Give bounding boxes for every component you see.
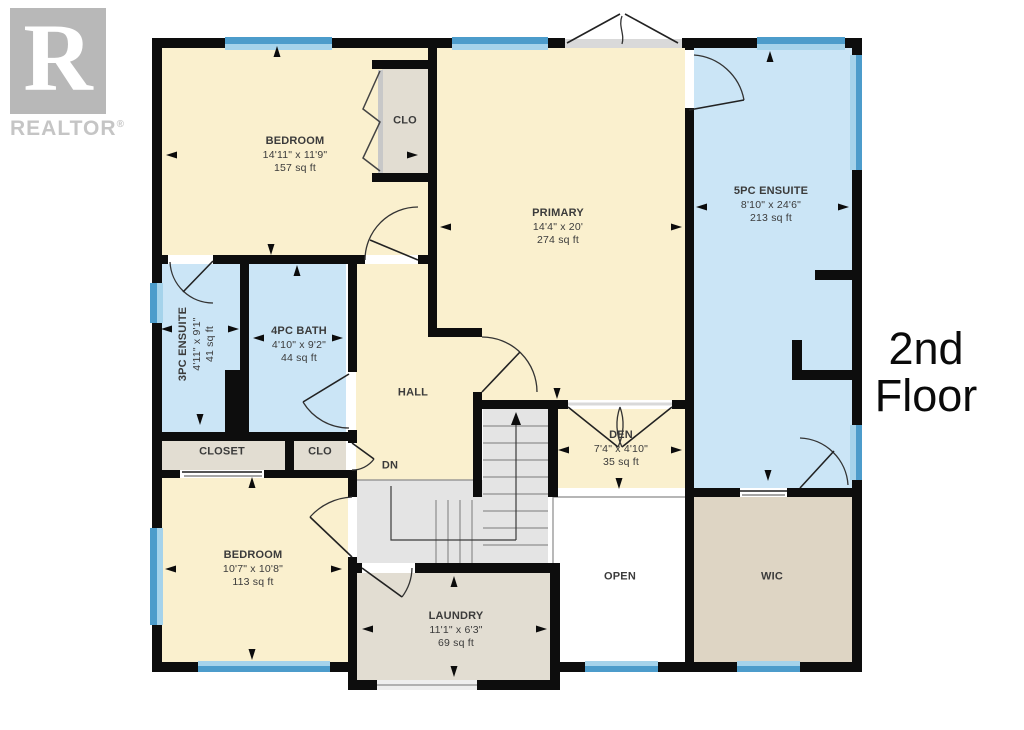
label-den: DEN 7'4" x 4'10" 35 sq ft bbox=[594, 429, 648, 470]
area-hall-lower bbox=[428, 337, 473, 480]
label-closet: CLOSET bbox=[199, 445, 245, 459]
label-bath-4pc: 4PC BATH 4'10" x 9'2" 44 sq ft bbox=[271, 325, 327, 366]
floor-plan-page: R REALTOR® 2nd Floor bbox=[0, 0, 1024, 730]
label-wic: WIC bbox=[761, 570, 783, 584]
label-closet-mid: CLO bbox=[308, 445, 332, 459]
floor-plan-graphic bbox=[0, 0, 1024, 730]
label-hall: HALL bbox=[398, 386, 428, 400]
label-closet-top: CLO bbox=[393, 114, 417, 128]
label-stairs-dn: DN bbox=[382, 459, 398, 473]
label-bedroom-bot: BEDROOM 10'7" x 10'8" 113 sq ft bbox=[223, 549, 283, 590]
label-open: OPEN bbox=[604, 570, 636, 584]
double-door-sill bbox=[565, 39, 682, 48]
area-ensuite-5pc bbox=[694, 48, 852, 488]
label-bedroom-top: BEDROOM 14'11" x 11'9" 157 sq ft bbox=[263, 135, 328, 176]
area-hall-upper bbox=[356, 264, 428, 480]
label-primary: PRIMARY 14'4" x 20' 274 sq ft bbox=[532, 207, 584, 248]
label-laundry: LAUNDRY 11'1" x 6'3" 69 sq ft bbox=[429, 610, 484, 651]
label-ensuite-5pc: 5PC ENSUITE 8'10" x 24'6" 213 sq ft bbox=[734, 185, 808, 226]
label-ensuite-3pc: 3PC ENSUITE 4'11" x 9'1" 41 sq ft bbox=[177, 307, 218, 381]
